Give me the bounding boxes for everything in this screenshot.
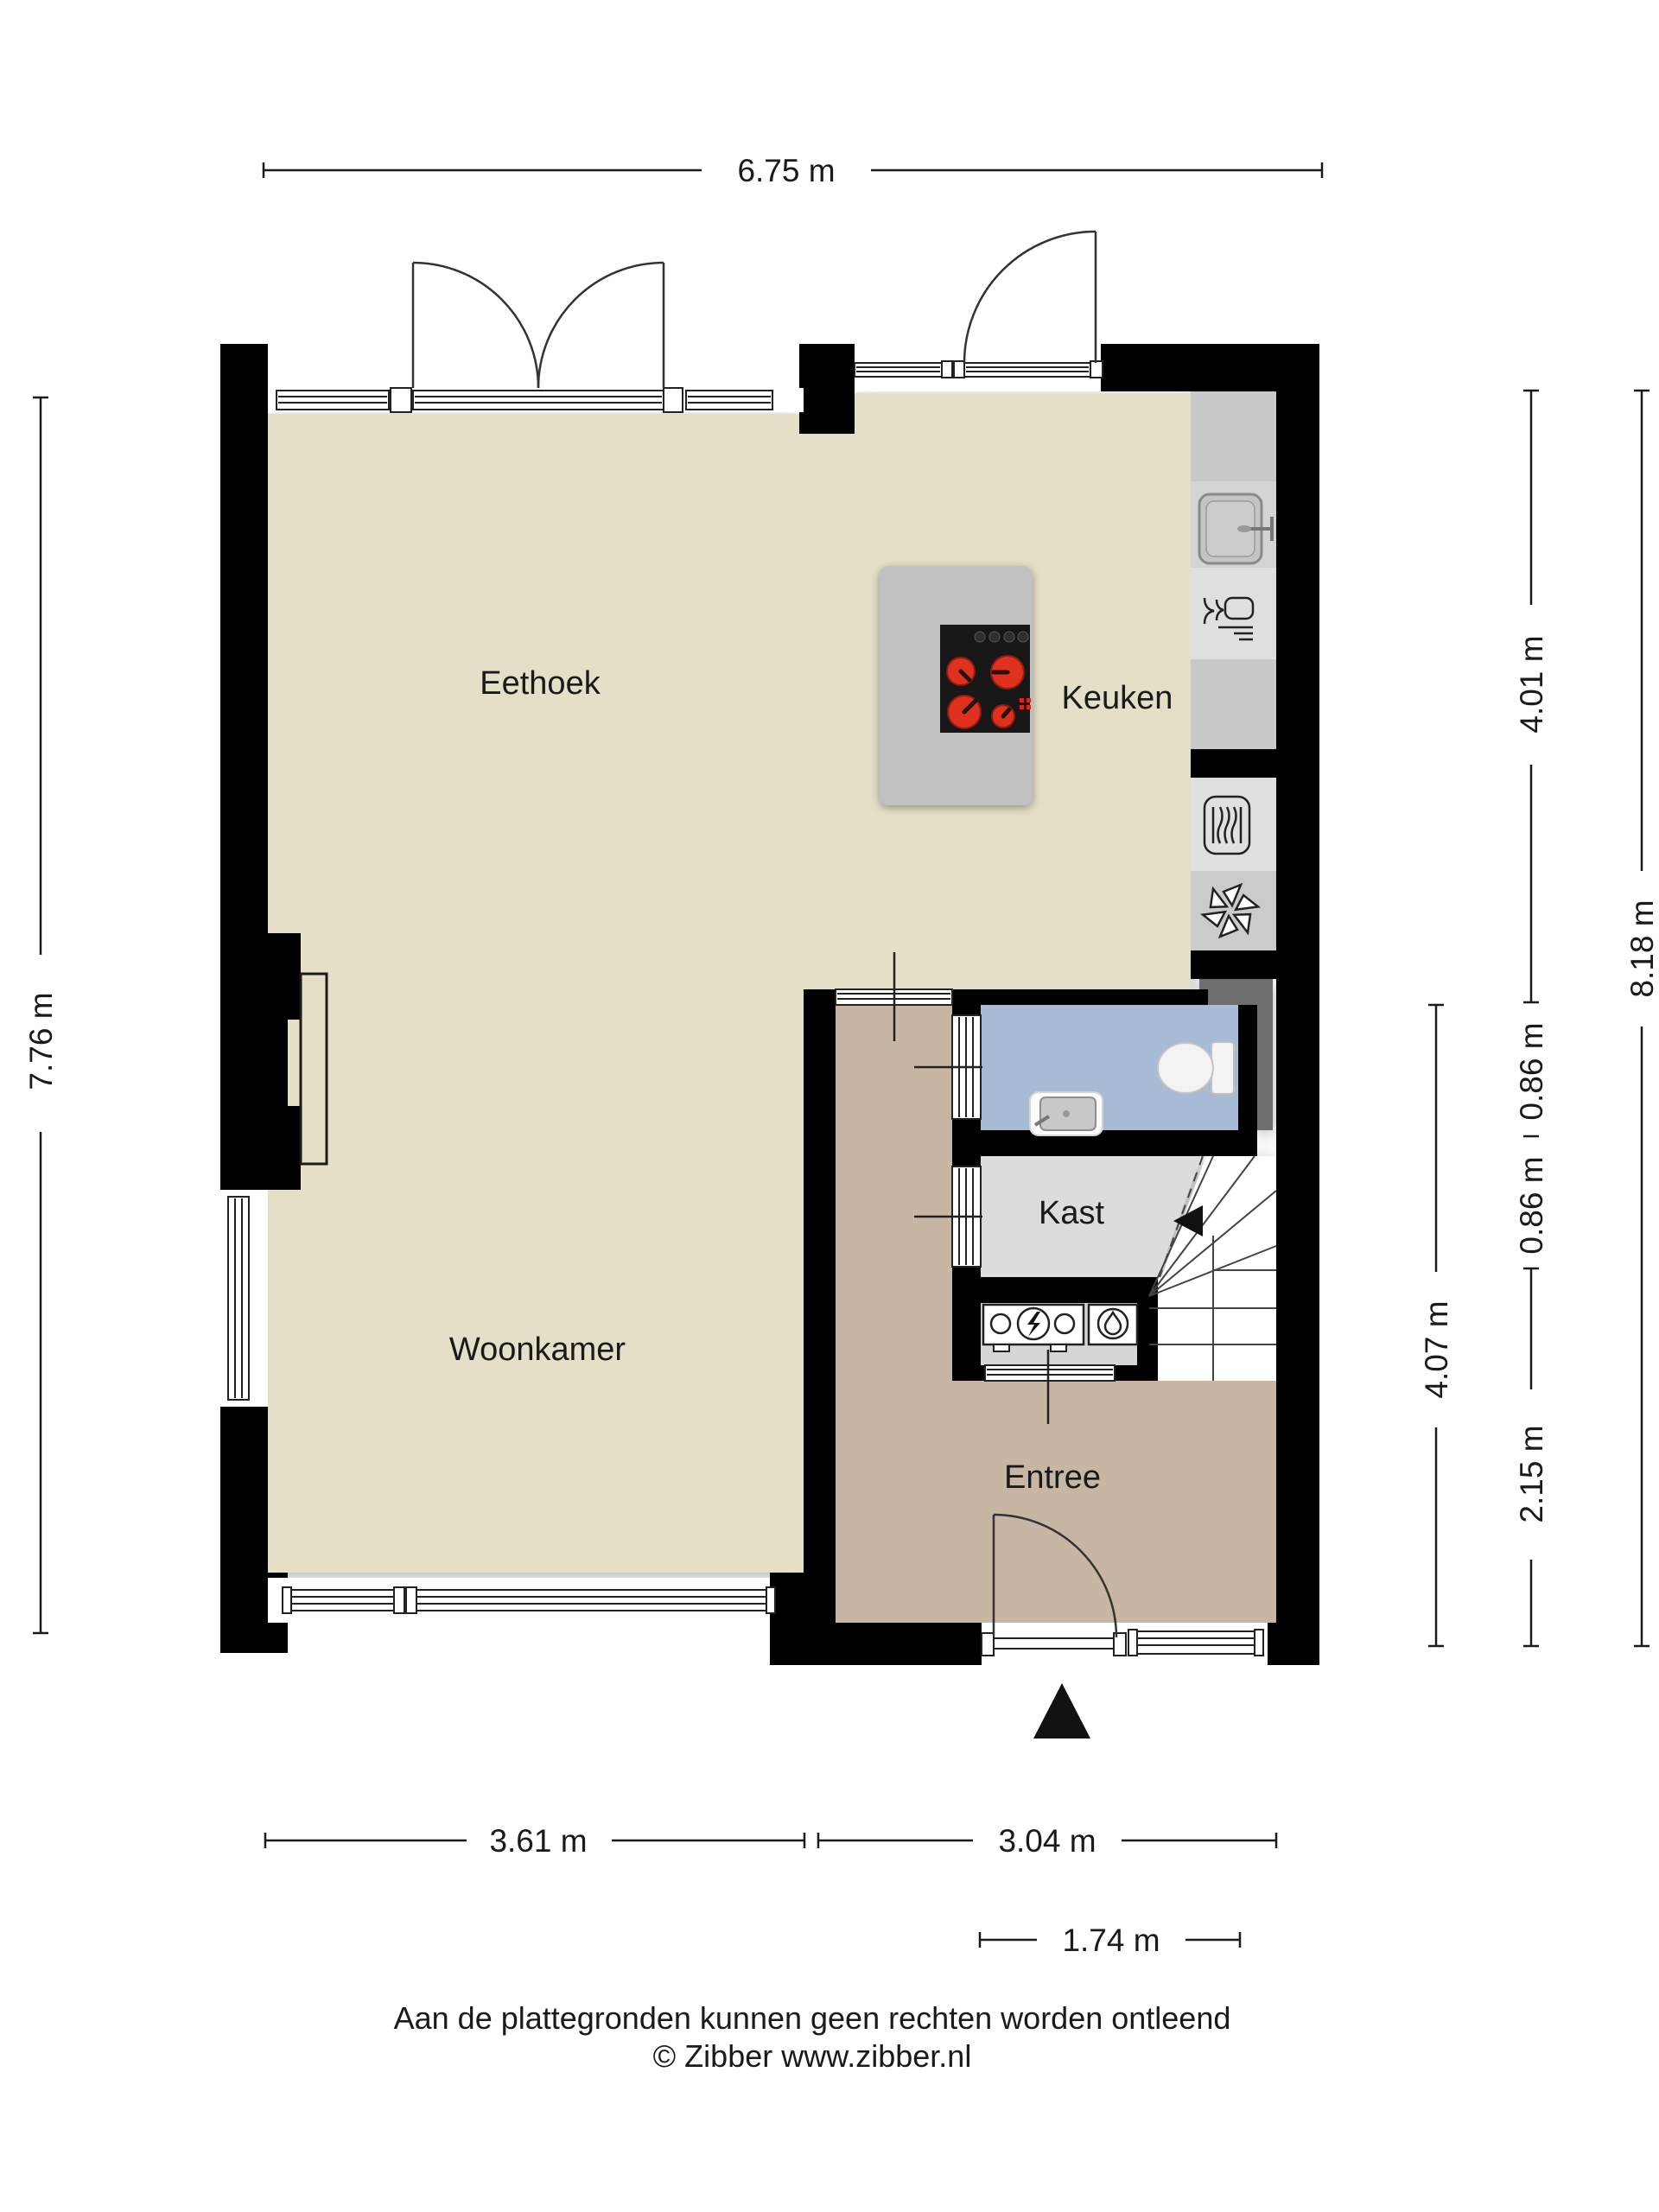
- dim-label-174: 1.74 m: [1062, 1923, 1160, 1958]
- dim-bottom-row2: 1.74 m: [980, 1923, 1240, 1958]
- footer-disclaimer: Aan de plattegronden kunnen geen rechten…: [394, 2000, 1231, 2036]
- washbasin-icon: [1030, 1092, 1103, 1135]
- dim-label-top: 6.75 m: [737, 153, 835, 188]
- french-doors: [413, 263, 664, 388]
- dim-label-left: 7.76 m: [23, 992, 59, 1090]
- room-label-keuken: Keuken: [1062, 680, 1173, 716]
- entrance-arrow-icon: [1033, 1683, 1090, 1738]
- window-kitchen-top: [855, 363, 942, 377]
- dim-label-818: 8.18 m: [1624, 899, 1659, 997]
- stove-icon: [940, 625, 1031, 733]
- kitchen-door: [964, 232, 1096, 363]
- dim-bottom-row1: 3.61 m 3.04 m: [265, 1823, 1276, 1859]
- dim-label-086a: 0.86 m: [1514, 1022, 1549, 1120]
- dim-right-inner: 4.01 m 0.86 m 0.86 m 2.15 m: [1514, 391, 1549, 1646]
- kitchen-door-sill: [964, 363, 1090, 377]
- footer-copyright: © Zibber www.zibber.nl: [653, 2038, 972, 2074]
- dim-label-304: 3.04 m: [998, 1823, 1096, 1859]
- dim-right-407: 4.07 m: [1419, 1005, 1454, 1646]
- dim-right-outer: 8.18 m: [1624, 391, 1659, 1646]
- room-label-kast: Kast: [1039, 1195, 1104, 1231]
- window-entree: [1128, 1630, 1263, 1656]
- dim-label-407: 4.07 m: [1419, 1300, 1454, 1398]
- dim-label-086b: 0.86 m: [1514, 1156, 1549, 1254]
- dim-left: 7.76 m: [23, 397, 59, 1633]
- window-bottom-left: [283, 1587, 775, 1613]
- sink-icon: [1199, 494, 1272, 563]
- floorplan-canvas: Eethoek Keuken Woonkamer Kast Entree 6.7…: [0, 0, 1659, 2212]
- dim-label-361: 3.61 m: [489, 1823, 587, 1859]
- french-door-sill: [413, 391, 664, 410]
- dim-label-215: 2.15 m: [1514, 1425, 1549, 1522]
- dim-label-401: 4.01 m: [1514, 635, 1549, 733]
- room-label-woonkamer: Woonkamer: [449, 1332, 626, 1368]
- kitchen-counter: [1191, 391, 1276, 950]
- electricity-meter-icon: [983, 1305, 1084, 1351]
- room-label-eethoek: Eethoek: [480, 665, 601, 702]
- toilet-icon: [1158, 1042, 1234, 1094]
- water-meter-icon: [1089, 1305, 1137, 1344]
- window-left: [228, 1197, 249, 1400]
- window-top-left: [276, 391, 389, 410]
- window-top-mid: [686, 391, 772, 410]
- floorplan-page: Eethoek Keuken Woonkamer Kast Entree 6.7…: [0, 0, 1659, 2212]
- floors: [268, 391, 1276, 1623]
- dim-top: 6.75 m: [264, 153, 1322, 188]
- footer: Aan de plattegronden kunnen geen rechten…: [394, 2000, 1231, 2074]
- room-label-entree: Entree: [1004, 1459, 1101, 1496]
